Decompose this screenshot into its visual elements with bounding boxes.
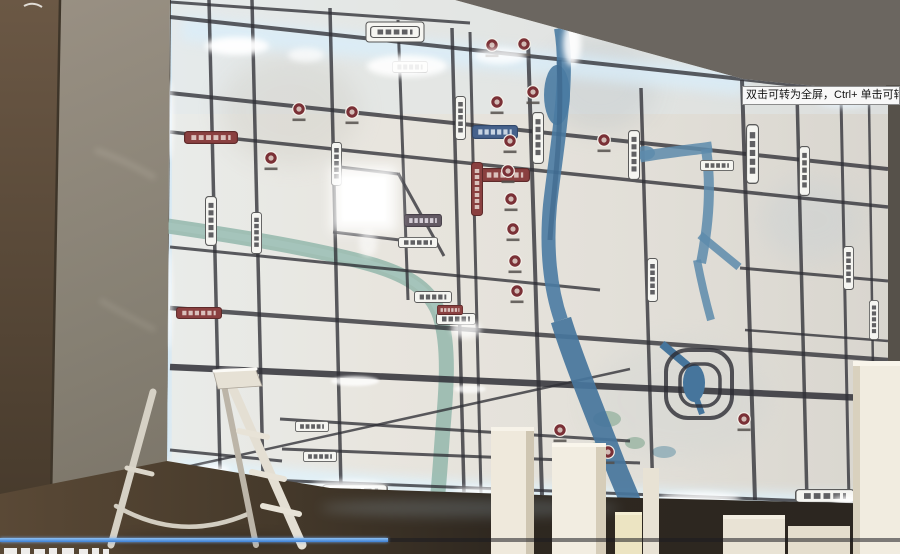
road-label-vertical bbox=[747, 125, 759, 184]
white-box bbox=[491, 427, 534, 554]
white-box bbox=[853, 361, 900, 554]
road-label bbox=[399, 237, 438, 247]
road-label-vertical bbox=[869, 300, 878, 339]
road-label bbox=[303, 451, 336, 461]
road-label-vertical bbox=[629, 131, 640, 180]
road-label-red bbox=[185, 132, 238, 144]
road-label-vertical bbox=[206, 197, 217, 246]
scene-photo[interactable] bbox=[0, 0, 900, 554]
road-label bbox=[414, 292, 451, 303]
road-label bbox=[295, 421, 328, 431]
white-box bbox=[615, 512, 642, 554]
video-frame[interactable]: 双击可转为全屏，Ctrl+ 单击可转为 bbox=[0, 0, 900, 554]
ladder-shadow bbox=[110, 534, 300, 550]
road-label-vertical bbox=[843, 247, 853, 290]
road-label bbox=[371, 27, 420, 38]
white-box bbox=[723, 515, 785, 554]
road-label-vertical bbox=[647, 259, 657, 302]
road-label-vertical bbox=[455, 97, 465, 140]
road-label-vertical bbox=[533, 113, 544, 164]
road-label bbox=[700, 160, 733, 170]
road-label-vertical bbox=[799, 147, 809, 196]
place-label bbox=[404, 215, 441, 227]
road-label-vertical bbox=[251, 212, 261, 253]
banner-label-red bbox=[472, 163, 483, 216]
road-label-red bbox=[177, 308, 222, 319]
lake bbox=[683, 364, 705, 402]
video-seekbar[interactable] bbox=[0, 538, 900, 542]
video-progress-fill bbox=[0, 538, 388, 542]
fullscreen-tooltip: 双击可转为全屏，Ctrl+ 单击可转为 bbox=[742, 86, 900, 105]
road-label-red bbox=[437, 305, 462, 314]
